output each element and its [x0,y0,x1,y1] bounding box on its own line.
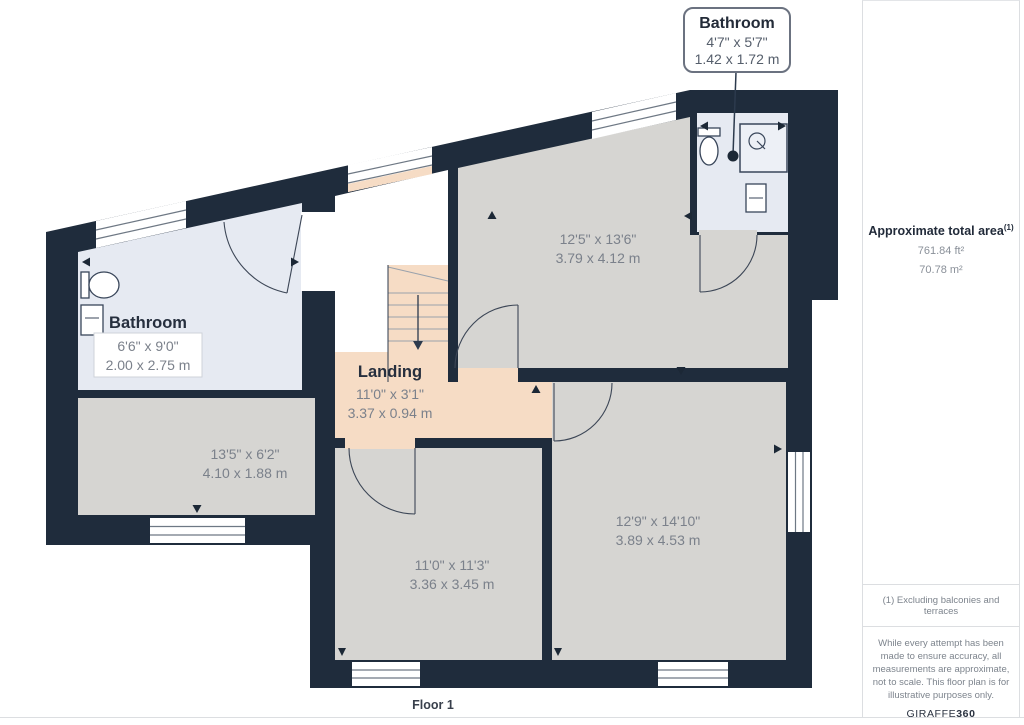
toilet-left-icon [81,272,119,298]
callout-anchor-dot [728,151,739,162]
svg-text:3.89 x 4.53 m: 3.89 x 4.53 m [616,532,701,548]
svg-text:3.79 x 4.12 m: 3.79 x 4.12 m [556,250,641,266]
window-bottom-right [658,662,728,686]
page-bottom-divider [0,717,1024,718]
label-landing: Landing 11'0" x 3'1" 3.37 x 0.94 m [348,363,433,421]
floor-plan: Bathroom 4'7" x 5'7" 1.42 x 1.72 m 12'5"… [0,0,862,717]
svg-text:4.10 x 1.88 m: 4.10 x 1.88 m [203,465,288,481]
svg-text:11'0" x 11'3": 11'0" x 11'3" [415,557,490,573]
door-gap-bottom-middle [345,438,415,449]
total-area-block: Approximate total area(1) 761.84 ft² 70.… [863,223,1019,276]
total-area-m: 70.78 m² [863,264,1019,276]
footnote-text: (1) Excluding balconies and terraces [863,595,1019,617]
floorplan-page: Bathroom 4'7" x 5'7" 1.42 x 1.72 m 12'5"… [0,0,1024,725]
floor-label: Floor 1 [412,698,454,712]
label-bathroom-left: Bathroom 6'6" x 9'0" 2.00 x 2.75 m [94,314,202,377]
disclaimer-text: While every attempt has been made to ens… [863,627,1019,702]
landing-top-opening [458,368,518,382]
callout-imperial: 4'7" x 5'7" [706,34,767,50]
svg-text:11'0" x 3'1": 11'0" x 3'1" [356,386,424,402]
footnote-block: (1) Excluding balconies and terraces [863,584,1019,627]
svg-text:2.00 x 2.75 m: 2.00 x 2.75 m [106,357,191,373]
window-right-wall [788,452,810,532]
callout-title: Bathroom [699,15,775,32]
total-area-label: Approximate total area(1) [863,223,1019,238]
window-room-left [150,518,245,543]
info-sidebar: Approximate total area(1) 761.84 ft² 70.… [862,0,1020,718]
svg-text:6'6" x 9'0": 6'6" x 9'0" [117,338,178,354]
callout-metric: 1.42 x 1.72 m [695,51,780,67]
disclaimer-block: While every attempt has been made to ens… [863,626,1019,719]
svg-text:3.37 x 0.94 m: 3.37 x 0.94 m [348,405,433,421]
sink-left-icon [81,305,103,335]
svg-text:Bathroom: Bathroom [109,314,187,332]
giraffe360-logo: GIRAFFE360 [863,708,1019,720]
sink-icon [746,184,766,212]
svg-text:12'5" x 13'6": 12'5" x 13'6" [560,231,637,247]
door-gap-bathroom-left [301,212,336,291]
svg-text:12'9" x 14'10": 12'9" x 14'10" [616,513,701,529]
svg-text:Landing: Landing [358,363,422,381]
room-bottom-middle [335,448,542,660]
window-bottom-middle [352,662,420,686]
total-area-ft: 761.84 ft² [863,245,1019,257]
shower-icon [740,124,787,172]
svg-text:3.36 x 3.45 m: 3.36 x 3.45 m [410,576,495,592]
total-area-footnote-marker: (1) [1004,223,1014,232]
svg-text:13'5" x 6'2": 13'5" x 6'2" [211,446,280,462]
toilet-icon [698,128,720,165]
door-gap-bathroom-top-right [699,230,757,237]
